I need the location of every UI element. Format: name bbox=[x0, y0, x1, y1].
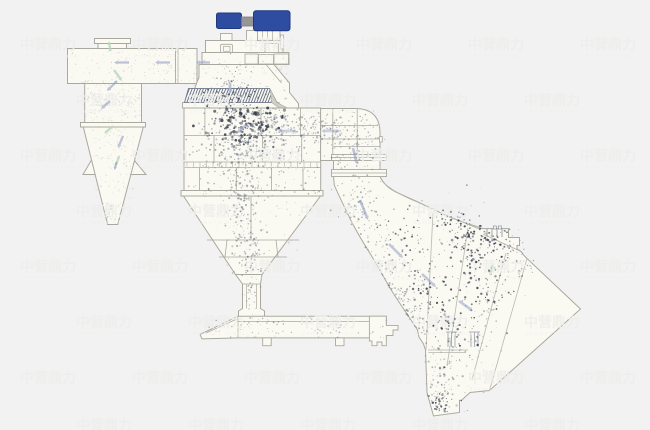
svg-text:中营鼎力,: 中营鼎力, bbox=[20, 148, 78, 164]
svg-text:ZHONGYU DINGLI: ZHONGYU DINGLI bbox=[246, 387, 305, 392]
svg-text:ZHONGYU DINGLI: ZHONGYU DINGLI bbox=[414, 331, 473, 336]
svg-text:ZHONGYU DINGLI: ZHONGYU DINGLI bbox=[302, 331, 361, 336]
svg-text:ZHONGYU DINGLI: ZHONGYU DINGLI bbox=[22, 387, 81, 392]
svg-text:ZHONGYU DINGLI: ZHONGYU DINGLI bbox=[358, 165, 417, 170]
svg-text:中营鼎力,: 中营鼎力, bbox=[580, 148, 638, 164]
svg-text:中营鼎力,: 中营鼎力, bbox=[524, 203, 582, 219]
svg-text:ZHONGYU DINGLI: ZHONGYU DINGLI bbox=[470, 165, 529, 170]
svg-text:ZHONGYU DINGLI: ZHONGYU DINGLI bbox=[78, 109, 137, 114]
svg-text:ZHONGYU DINGLI: ZHONGYU DINGLI bbox=[526, 220, 585, 225]
svg-text:ZHONGYU DINGLI: ZHONGYU DINGLI bbox=[582, 165, 641, 170]
svg-text:中营鼎力,: 中营鼎力, bbox=[132, 37, 190, 53]
svg-text:ZHONGYU DINGLI: ZHONGYU DINGLI bbox=[246, 165, 305, 170]
svg-text:中营鼎力,: 中营鼎力, bbox=[300, 417, 358, 430]
svg-text:中营鼎力,: 中营鼎力, bbox=[524, 92, 582, 108]
svg-text:中营鼎力,: 中营鼎力, bbox=[76, 203, 134, 219]
svg-text:中营鼎力,: 中营鼎力, bbox=[580, 37, 638, 53]
svg-text:中营鼎力,: 中营鼎力, bbox=[468, 37, 526, 53]
svg-text:ZHONGYU DINGLI: ZHONGYU DINGLI bbox=[22, 276, 81, 281]
svg-text:中营鼎力,: 中营鼎力, bbox=[356, 259, 414, 275]
svg-text:ZHONGYU DINGLI: ZHONGYU DINGLI bbox=[246, 54, 305, 59]
svg-text:ZHONGYU DINGLI: ZHONGYU DINGLI bbox=[358, 276, 417, 281]
svg-text:中营鼎力,: 中营鼎力, bbox=[468, 370, 526, 386]
svg-text:ZHONGYU DINGLI: ZHONGYU DINGLI bbox=[302, 109, 361, 114]
svg-text:ZHONGYU DINGLI: ZHONGYU DINGLI bbox=[22, 165, 81, 170]
svg-text:ZHONGYU DINGLI: ZHONGYU DINGLI bbox=[526, 331, 585, 336]
svg-text:中营鼎力,: 中营鼎力, bbox=[20, 37, 78, 53]
svg-text:中营鼎力,: 中营鼎力, bbox=[132, 370, 190, 386]
svg-text:中营鼎力,: 中营鼎力, bbox=[188, 92, 246, 108]
svg-text:中营鼎力,: 中营鼎力, bbox=[188, 417, 246, 430]
svg-text:ZHONGYU DINGLI: ZHONGYU DINGLI bbox=[582, 276, 641, 281]
svg-text:中营鼎力,: 中营鼎力, bbox=[244, 148, 302, 164]
svg-text:中营鼎力,: 中营鼎力, bbox=[356, 370, 414, 386]
svg-text:ZHONGYU DINGLI: ZHONGYU DINGLI bbox=[134, 165, 193, 170]
svg-text:中营鼎力,: 中营鼎力, bbox=[20, 370, 78, 386]
svg-text:ZHONGYU DINGLI: ZHONGYU DINGLI bbox=[134, 276, 193, 281]
svg-text:ZHONGYU DINGLI: ZHONGYU DINGLI bbox=[470, 54, 529, 59]
svg-text:ZHONGYU DINGLI: ZHONGYU DINGLI bbox=[414, 109, 473, 114]
svg-text:ZHONGYU DINGLI: ZHONGYU DINGLI bbox=[78, 331, 137, 336]
svg-text:中营鼎力,: 中营鼎力, bbox=[356, 148, 414, 164]
svg-text:中营鼎力,: 中营鼎力, bbox=[76, 417, 134, 430]
svg-text:ZHONGYU DINGLI: ZHONGYU DINGLI bbox=[78, 220, 137, 225]
svg-text:中营鼎力,: 中营鼎力, bbox=[300, 92, 358, 108]
svg-text:ZHONGYU DINGLI: ZHONGYU DINGLI bbox=[582, 54, 641, 59]
svg-text:中营鼎力,: 中营鼎力, bbox=[244, 259, 302, 275]
svg-text:中营鼎力,: 中营鼎力, bbox=[580, 259, 638, 275]
svg-text:ZHONGYU DINGLI: ZHONGYU DINGLI bbox=[470, 387, 529, 392]
svg-text:中营鼎力,: 中营鼎力, bbox=[468, 148, 526, 164]
svg-text:中营鼎力,: 中营鼎力, bbox=[76, 314, 134, 330]
svg-text:ZHONGYU DINGLI: ZHONGYU DINGLI bbox=[358, 387, 417, 392]
svg-text:中营鼎力,: 中营鼎力, bbox=[412, 417, 470, 430]
svg-text:中营鼎力,: 中营鼎力, bbox=[412, 203, 470, 219]
svg-text:ZHONGYU DINGLI: ZHONGYU DINGLI bbox=[134, 387, 193, 392]
svg-text:中营鼎力,: 中营鼎力, bbox=[412, 92, 470, 108]
svg-text:中营鼎力,: 中营鼎力, bbox=[244, 37, 302, 53]
svg-text:中营鼎力,: 中营鼎力, bbox=[580, 370, 638, 386]
svg-text:中营鼎力,: 中营鼎力, bbox=[524, 417, 582, 430]
svg-text:中营鼎力,: 中营鼎力, bbox=[300, 314, 358, 330]
svg-text:中营鼎力,: 中营鼎力, bbox=[244, 370, 302, 386]
svg-text:ZHONGYU DINGLI: ZHONGYU DINGLI bbox=[190, 331, 249, 336]
svg-text:ZHONGYU DINGLI: ZHONGYU DINGLI bbox=[22, 54, 81, 59]
svg-text:中营鼎力,: 中营鼎力, bbox=[132, 259, 190, 275]
svg-text:ZHONGYU DINGLI: ZHONGYU DINGLI bbox=[246, 276, 305, 281]
svg-text:中营鼎力,: 中营鼎力, bbox=[524, 314, 582, 330]
svg-text:中营鼎力,: 中营鼎力, bbox=[356, 37, 414, 53]
svg-text:ZHONGYU DINGLI: ZHONGYU DINGLI bbox=[526, 109, 585, 114]
svg-text:中营鼎力,: 中营鼎力, bbox=[188, 314, 246, 330]
svg-text:ZHONGYU DINGLI: ZHONGYU DINGLI bbox=[302, 220, 361, 225]
svg-text:中营鼎力,: 中营鼎力, bbox=[132, 148, 190, 164]
svg-text:中营鼎力,: 中营鼎力, bbox=[20, 259, 78, 275]
svg-text:ZHONGYU DINGLI: ZHONGYU DINGLI bbox=[358, 54, 417, 59]
svg-text:ZHONGYU DINGLI: ZHONGYU DINGLI bbox=[134, 54, 193, 59]
svg-text:ZHONGYU DINGLI: ZHONGYU DINGLI bbox=[582, 387, 641, 392]
